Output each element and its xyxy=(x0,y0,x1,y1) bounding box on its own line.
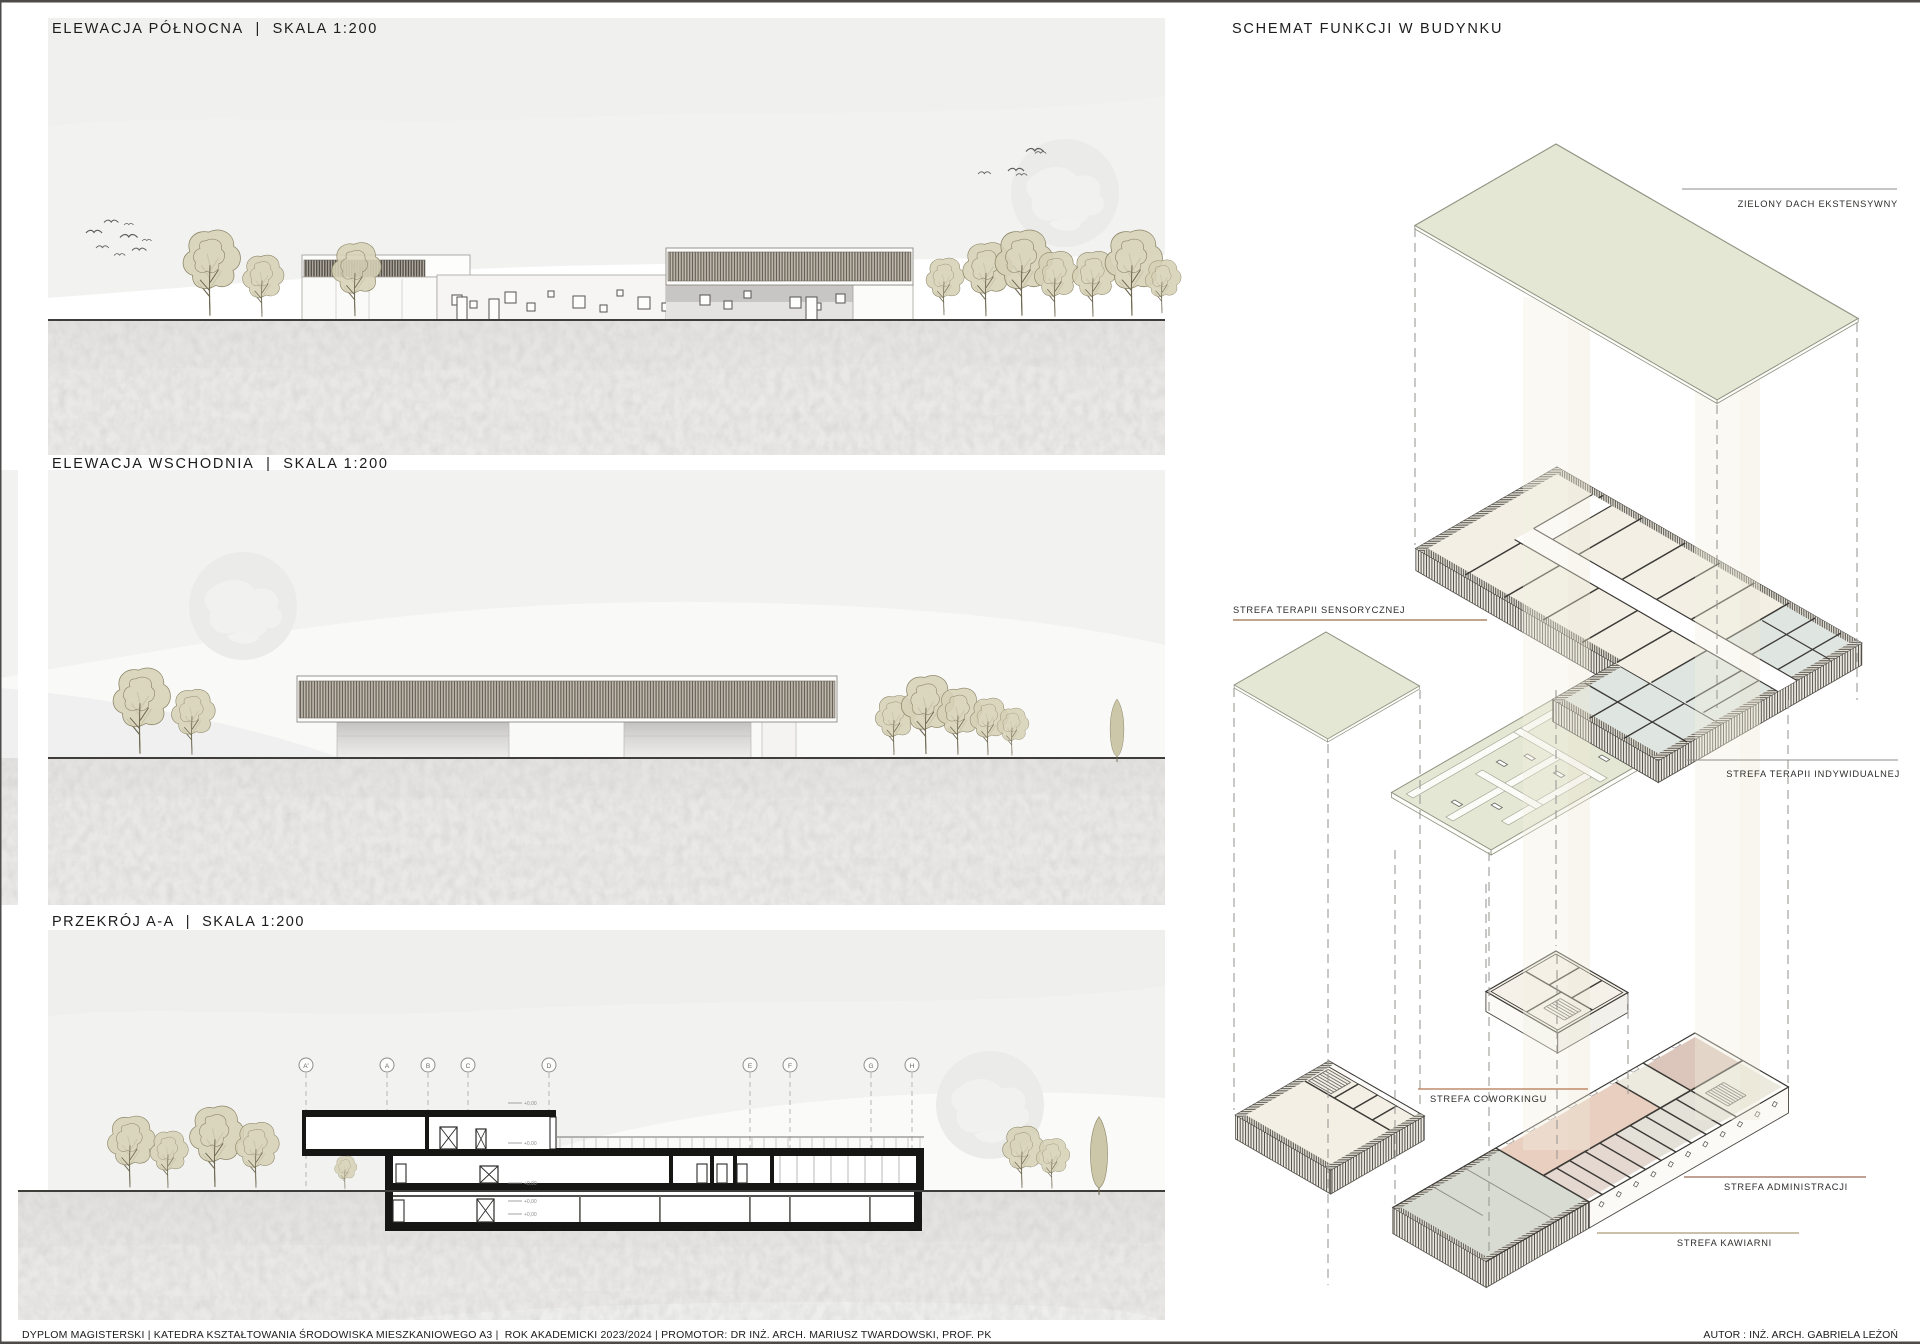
svg-text:A: A xyxy=(385,1063,390,1070)
svg-text:B: B xyxy=(426,1063,430,1070)
svg-text:STREFA ADMINISTRACJI: STREFA ADMINISTRACJI xyxy=(1724,1182,1848,1192)
svg-text:H: H xyxy=(910,1063,915,1070)
svg-text:+0,00: +0,00 xyxy=(524,1199,537,1205)
svg-text:PRZEKRÓJ A-A | SKALA 1:200: PRZEKRÓJ A-A | SKALA 1:200 xyxy=(52,913,305,930)
svg-text:ZIELONY DACH EKSTENSYWNY: ZIELONY DACH EKSTENSYWNY xyxy=(1738,199,1898,209)
svg-text:DYPLOM MAGISTERSKI | KATEDRA K: DYPLOM MAGISTERSKI | KATEDRA KSZTAŁTOWAN… xyxy=(22,1328,992,1341)
svg-text:F: F xyxy=(788,1063,792,1070)
svg-text:+0,00: +0,00 xyxy=(524,1212,537,1218)
svg-text:ELEWACJA WSCHODNIA | SKALA 1: ELEWACJA WSCHODNIA | SKALA 1:200 xyxy=(52,456,389,472)
svg-text:STREFA TERAPII SENSORYCZNEJ: STREFA TERAPII SENSORYCZNEJ xyxy=(1233,605,1405,615)
svg-text:E: E xyxy=(748,1063,753,1070)
svg-text:+0,00: +0,00 xyxy=(524,1101,537,1107)
svg-text:C: C xyxy=(466,1063,471,1070)
svg-text:STREFA COWORKINGU: STREFA COWORKINGU xyxy=(1430,1094,1547,1104)
svg-text:+0,00: +0,00 xyxy=(524,1181,537,1187)
svg-text:SCHEMAT FUNKCJI W BUDYNKU: SCHEMAT FUNKCJI W BUDYNKU xyxy=(1232,21,1503,37)
svg-text:STREFA KAWIARNI: STREFA KAWIARNI xyxy=(1677,1238,1772,1248)
svg-text:G: G xyxy=(868,1063,873,1070)
svg-text:AUTOR : INŻ. ARCH. GABRIELA LE: AUTOR : INŻ. ARCH. GABRIELA LEŻOŃ xyxy=(1703,1328,1898,1341)
svg-text:D: D xyxy=(547,1063,552,1070)
svg-text:ELEWACJA PÓŁNOCNA | SKALA 1:: ELEWACJA PÓŁNOCNA | SKALA 1:200 xyxy=(52,20,378,37)
svg-text:+0,00: +0,00 xyxy=(524,1141,537,1147)
svg-text:STREFA TERAPII INDYWIDUALNEJ: STREFA TERAPII INDYWIDUALNEJ xyxy=(1726,769,1900,779)
svg-text:A': A' xyxy=(303,1063,309,1070)
